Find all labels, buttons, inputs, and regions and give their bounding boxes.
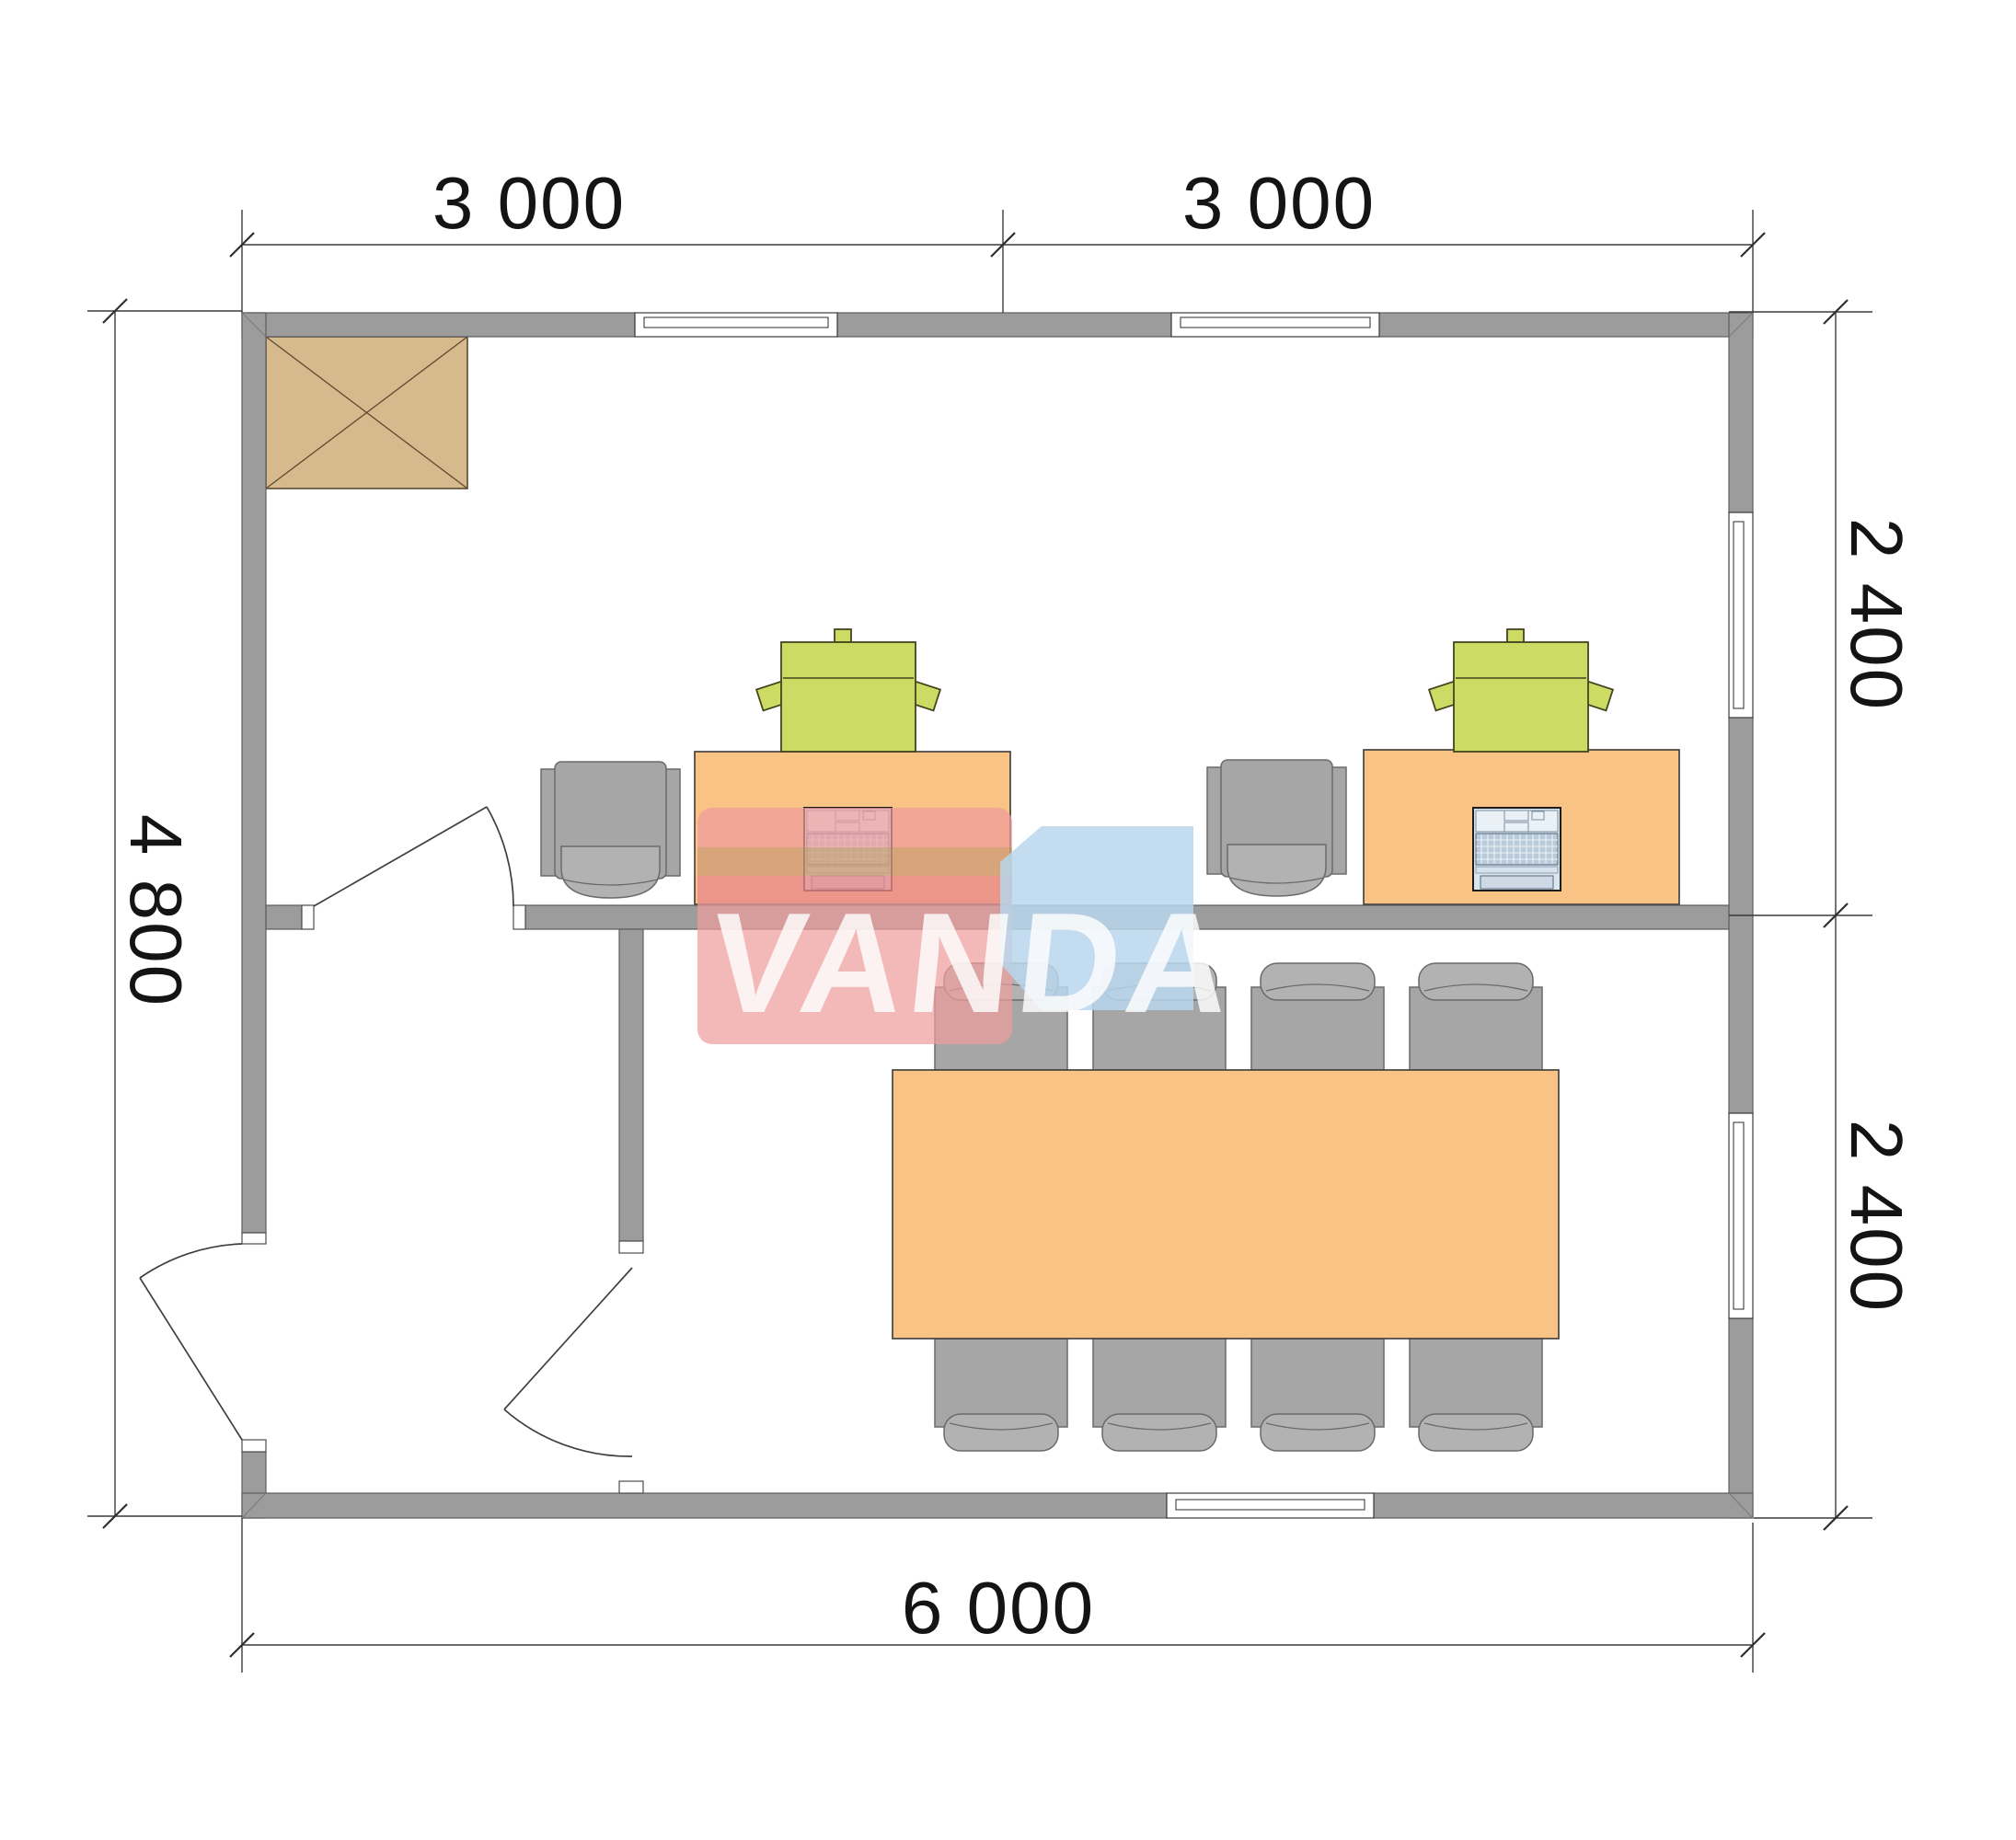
wall-bottom-seg2 (1374, 1493, 1753, 1518)
cabinet (266, 337, 467, 489)
window-right-1 (1729, 512, 1753, 718)
dim-label-left: 4 800 (115, 814, 197, 1007)
meeting-chair-6 (1093, 1328, 1226, 1451)
door-jambs (242, 905, 643, 1493)
wall-top-seg1 (242, 313, 635, 337)
dim-label-top-left: 3 000 (432, 162, 626, 244)
copier-1 (756, 629, 940, 752)
office-chair-1 (541, 762, 680, 898)
floor-plan-drawing: 3 000 3 000 4 800 2 400 2 400 6 000 VAND (0, 0, 2016, 1840)
meeting-chair-4 (1410, 963, 1542, 1087)
watermark-text: VANDA (703, 882, 1244, 1042)
dimension-right: 2 400 2 400 (1729, 300, 1918, 1530)
meeting-chairs-bottom-row (935, 1328, 1542, 1451)
meeting-chair-8 (1410, 1328, 1542, 1451)
wall-bottom-seg1 (242, 1493, 1167, 1518)
wall-top-seg3 (1379, 313, 1753, 337)
watermark-logo: VANDA (697, 808, 1244, 1044)
wall-top-seg2 (837, 313, 1171, 337)
wall-right-seg3 (1729, 1318, 1753, 1518)
window-top-1 (635, 313, 837, 337)
wall-partition-v (619, 929, 643, 1241)
wall-left-seg1 (242, 313, 266, 1233)
meeting-table (893, 1070, 1559, 1339)
dimension-left: 4 800 (87, 299, 242, 1528)
dim-label-top-right: 3 000 (1182, 162, 1376, 244)
door-meeting (504, 1268, 632, 1456)
dim-label-right-top: 2 400 (1836, 518, 1918, 711)
window-right-2 (1729, 1113, 1753, 1318)
window-bottom (1167, 1493, 1374, 1518)
copier-2 (1429, 629, 1613, 752)
floor-plan-page: 3 000 3 000 4 800 2 400 2 400 6 000 VAND (0, 0, 2016, 1840)
dim-label-bottom: 6 000 (902, 1567, 1095, 1649)
office-chair-2 (1207, 760, 1346, 896)
wall-partition-h-left (266, 905, 302, 929)
door-exterior (140, 1244, 242, 1440)
dim-label-right-bottom: 2 400 (1836, 1120, 1918, 1313)
meeting-chair-5 (935, 1328, 1067, 1451)
watermark-green-stripe (697, 847, 1012, 876)
meeting-chair-3 (1251, 963, 1384, 1087)
dimension-bottom: 6 000 (230, 1518, 1765, 1673)
door-office (314, 807, 513, 906)
meeting-chair-7 (1251, 1328, 1384, 1451)
laptop-2 (1473, 808, 1561, 891)
wall-right-seg1 (1729, 313, 1753, 512)
window-top-2 (1171, 313, 1379, 337)
dimension-top: 3 000 3 000 (230, 162, 1765, 313)
